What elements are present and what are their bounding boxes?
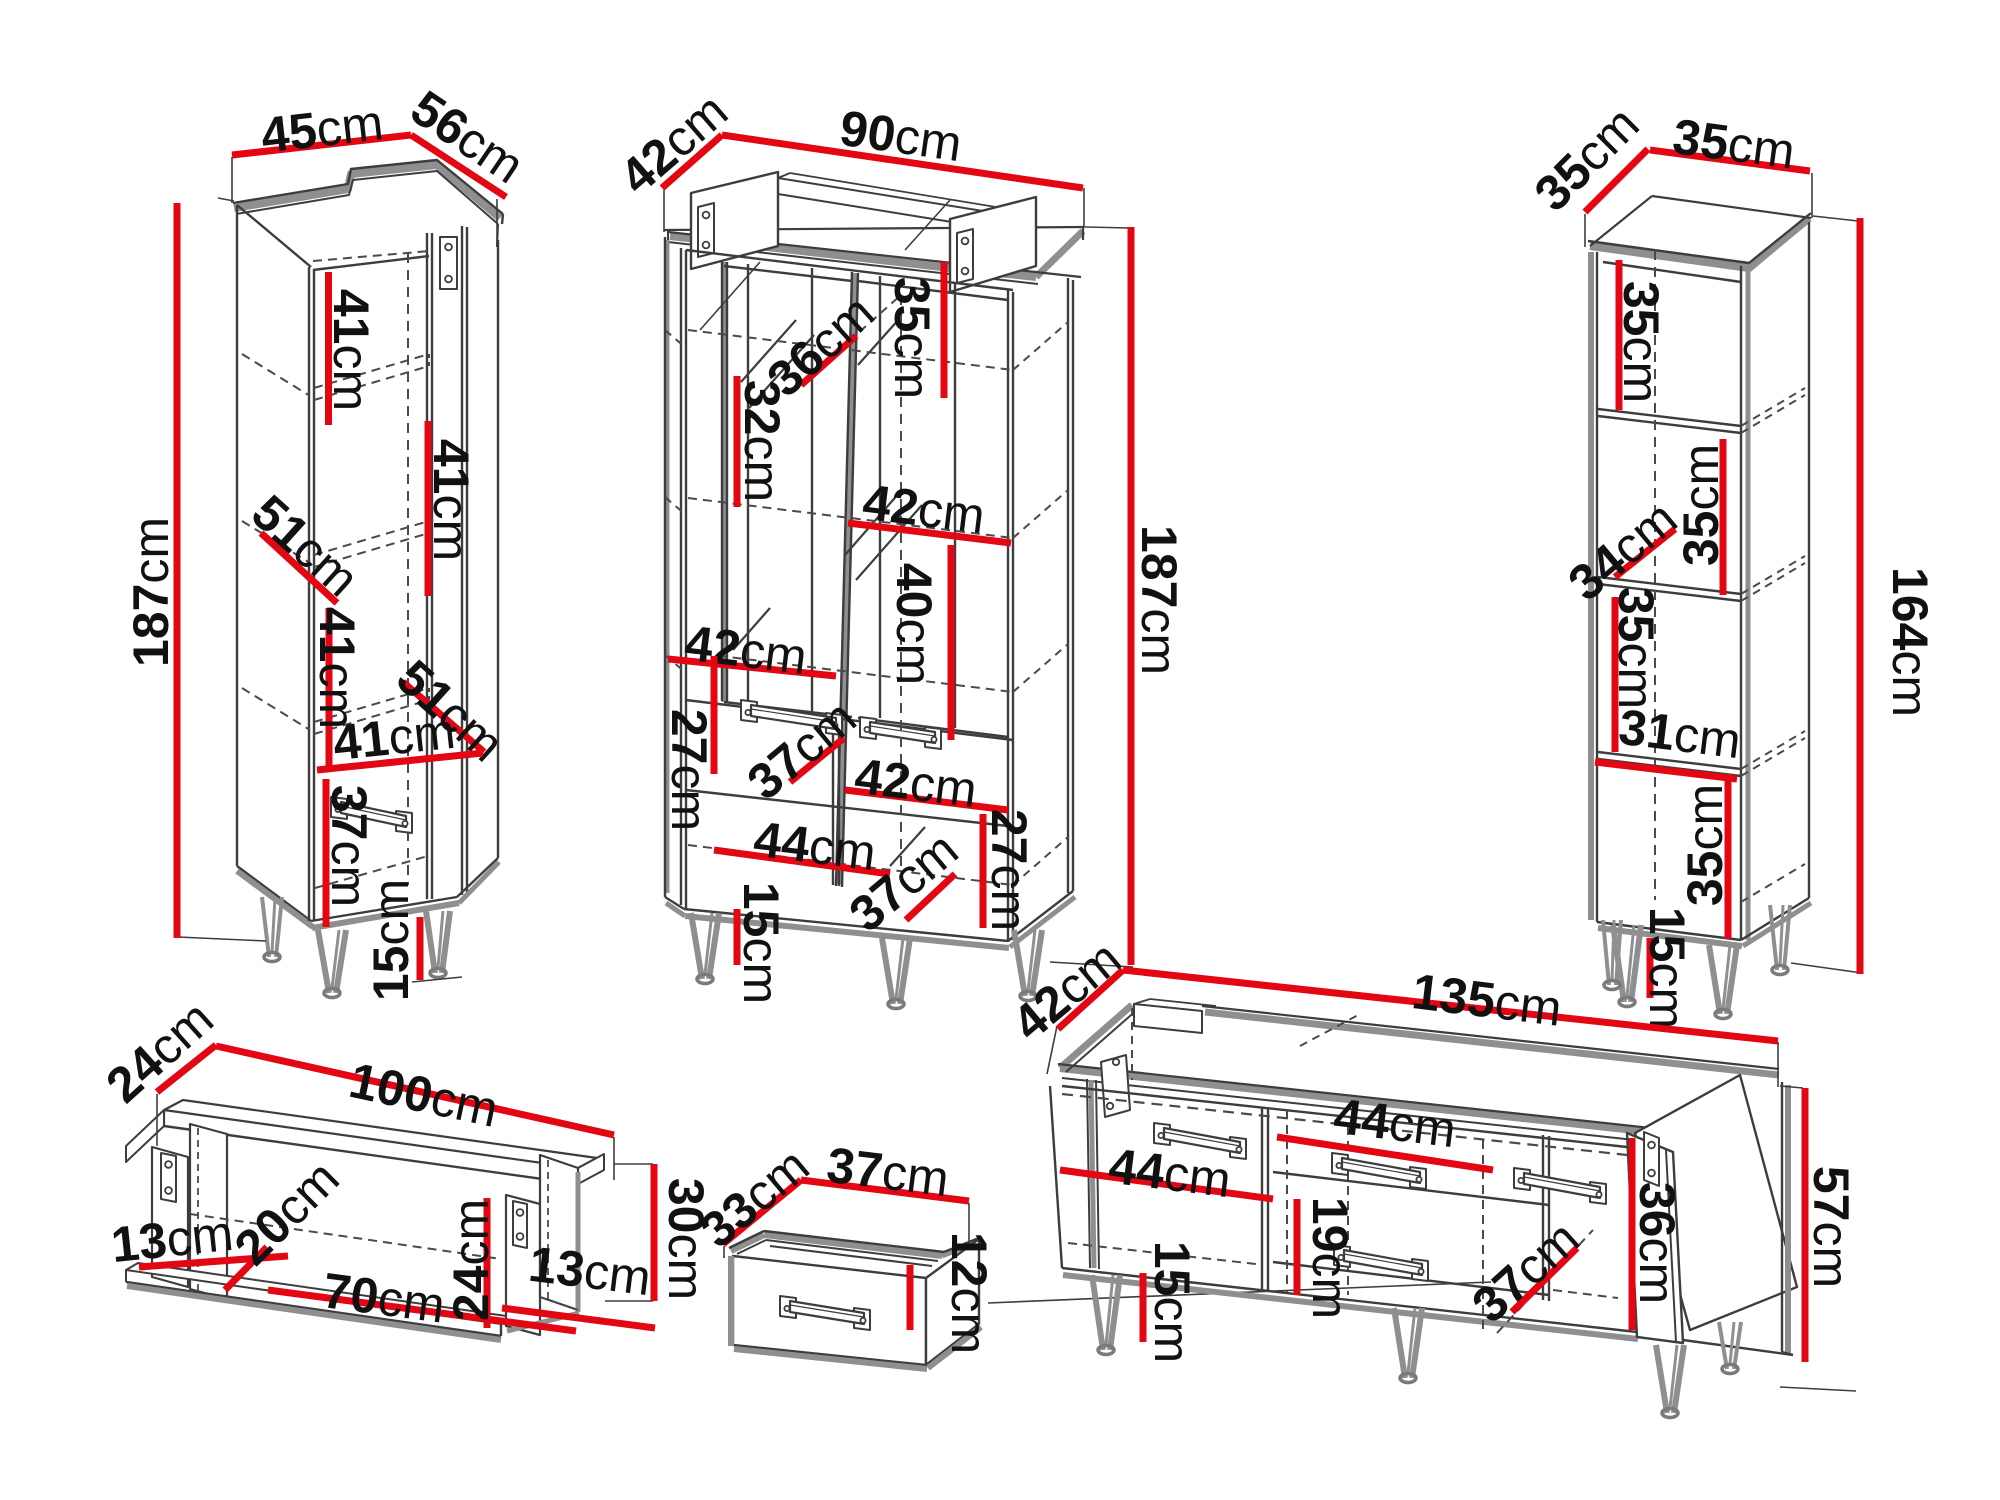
svg-text:57cm: 57cm	[1803, 1166, 1859, 1288]
svg-text:36cm: 36cm	[1629, 1182, 1685, 1304]
svg-text:27cm: 27cm	[981, 809, 1037, 931]
svg-text:41cm: 41cm	[323, 289, 379, 411]
svg-text:41cm: 41cm	[309, 607, 365, 729]
svg-text:15cm: 15cm	[1639, 907, 1695, 1029]
svg-text:15cm: 15cm	[1144, 1241, 1200, 1363]
svg-text:41cm: 41cm	[423, 439, 479, 561]
svg-text:15cm: 15cm	[363, 879, 419, 1001]
svg-text:32cm: 32cm	[734, 380, 790, 502]
svg-text:187cm: 187cm	[123, 517, 179, 667]
svg-text:35cm: 35cm	[884, 277, 940, 399]
svg-text:30cm: 30cm	[658, 1178, 714, 1300]
svg-text:27cm: 27cm	[661, 709, 717, 831]
svg-text:12cm: 12cm	[941, 1232, 997, 1354]
svg-text:35cm: 35cm	[1613, 281, 1669, 403]
svg-text:187cm: 187cm	[1131, 525, 1187, 675]
svg-text:24cm: 24cm	[443, 1199, 499, 1321]
svg-text:35cm: 35cm	[1677, 784, 1733, 906]
svg-text:40cm: 40cm	[886, 563, 942, 685]
svg-text:19cm: 19cm	[1302, 1197, 1358, 1319]
svg-text:35cm: 35cm	[1608, 587, 1664, 709]
svg-text:164cm: 164cm	[1882, 567, 1938, 717]
svg-text:35cm: 35cm	[1673, 444, 1729, 566]
svg-text:15cm: 15cm	[733, 882, 789, 1004]
